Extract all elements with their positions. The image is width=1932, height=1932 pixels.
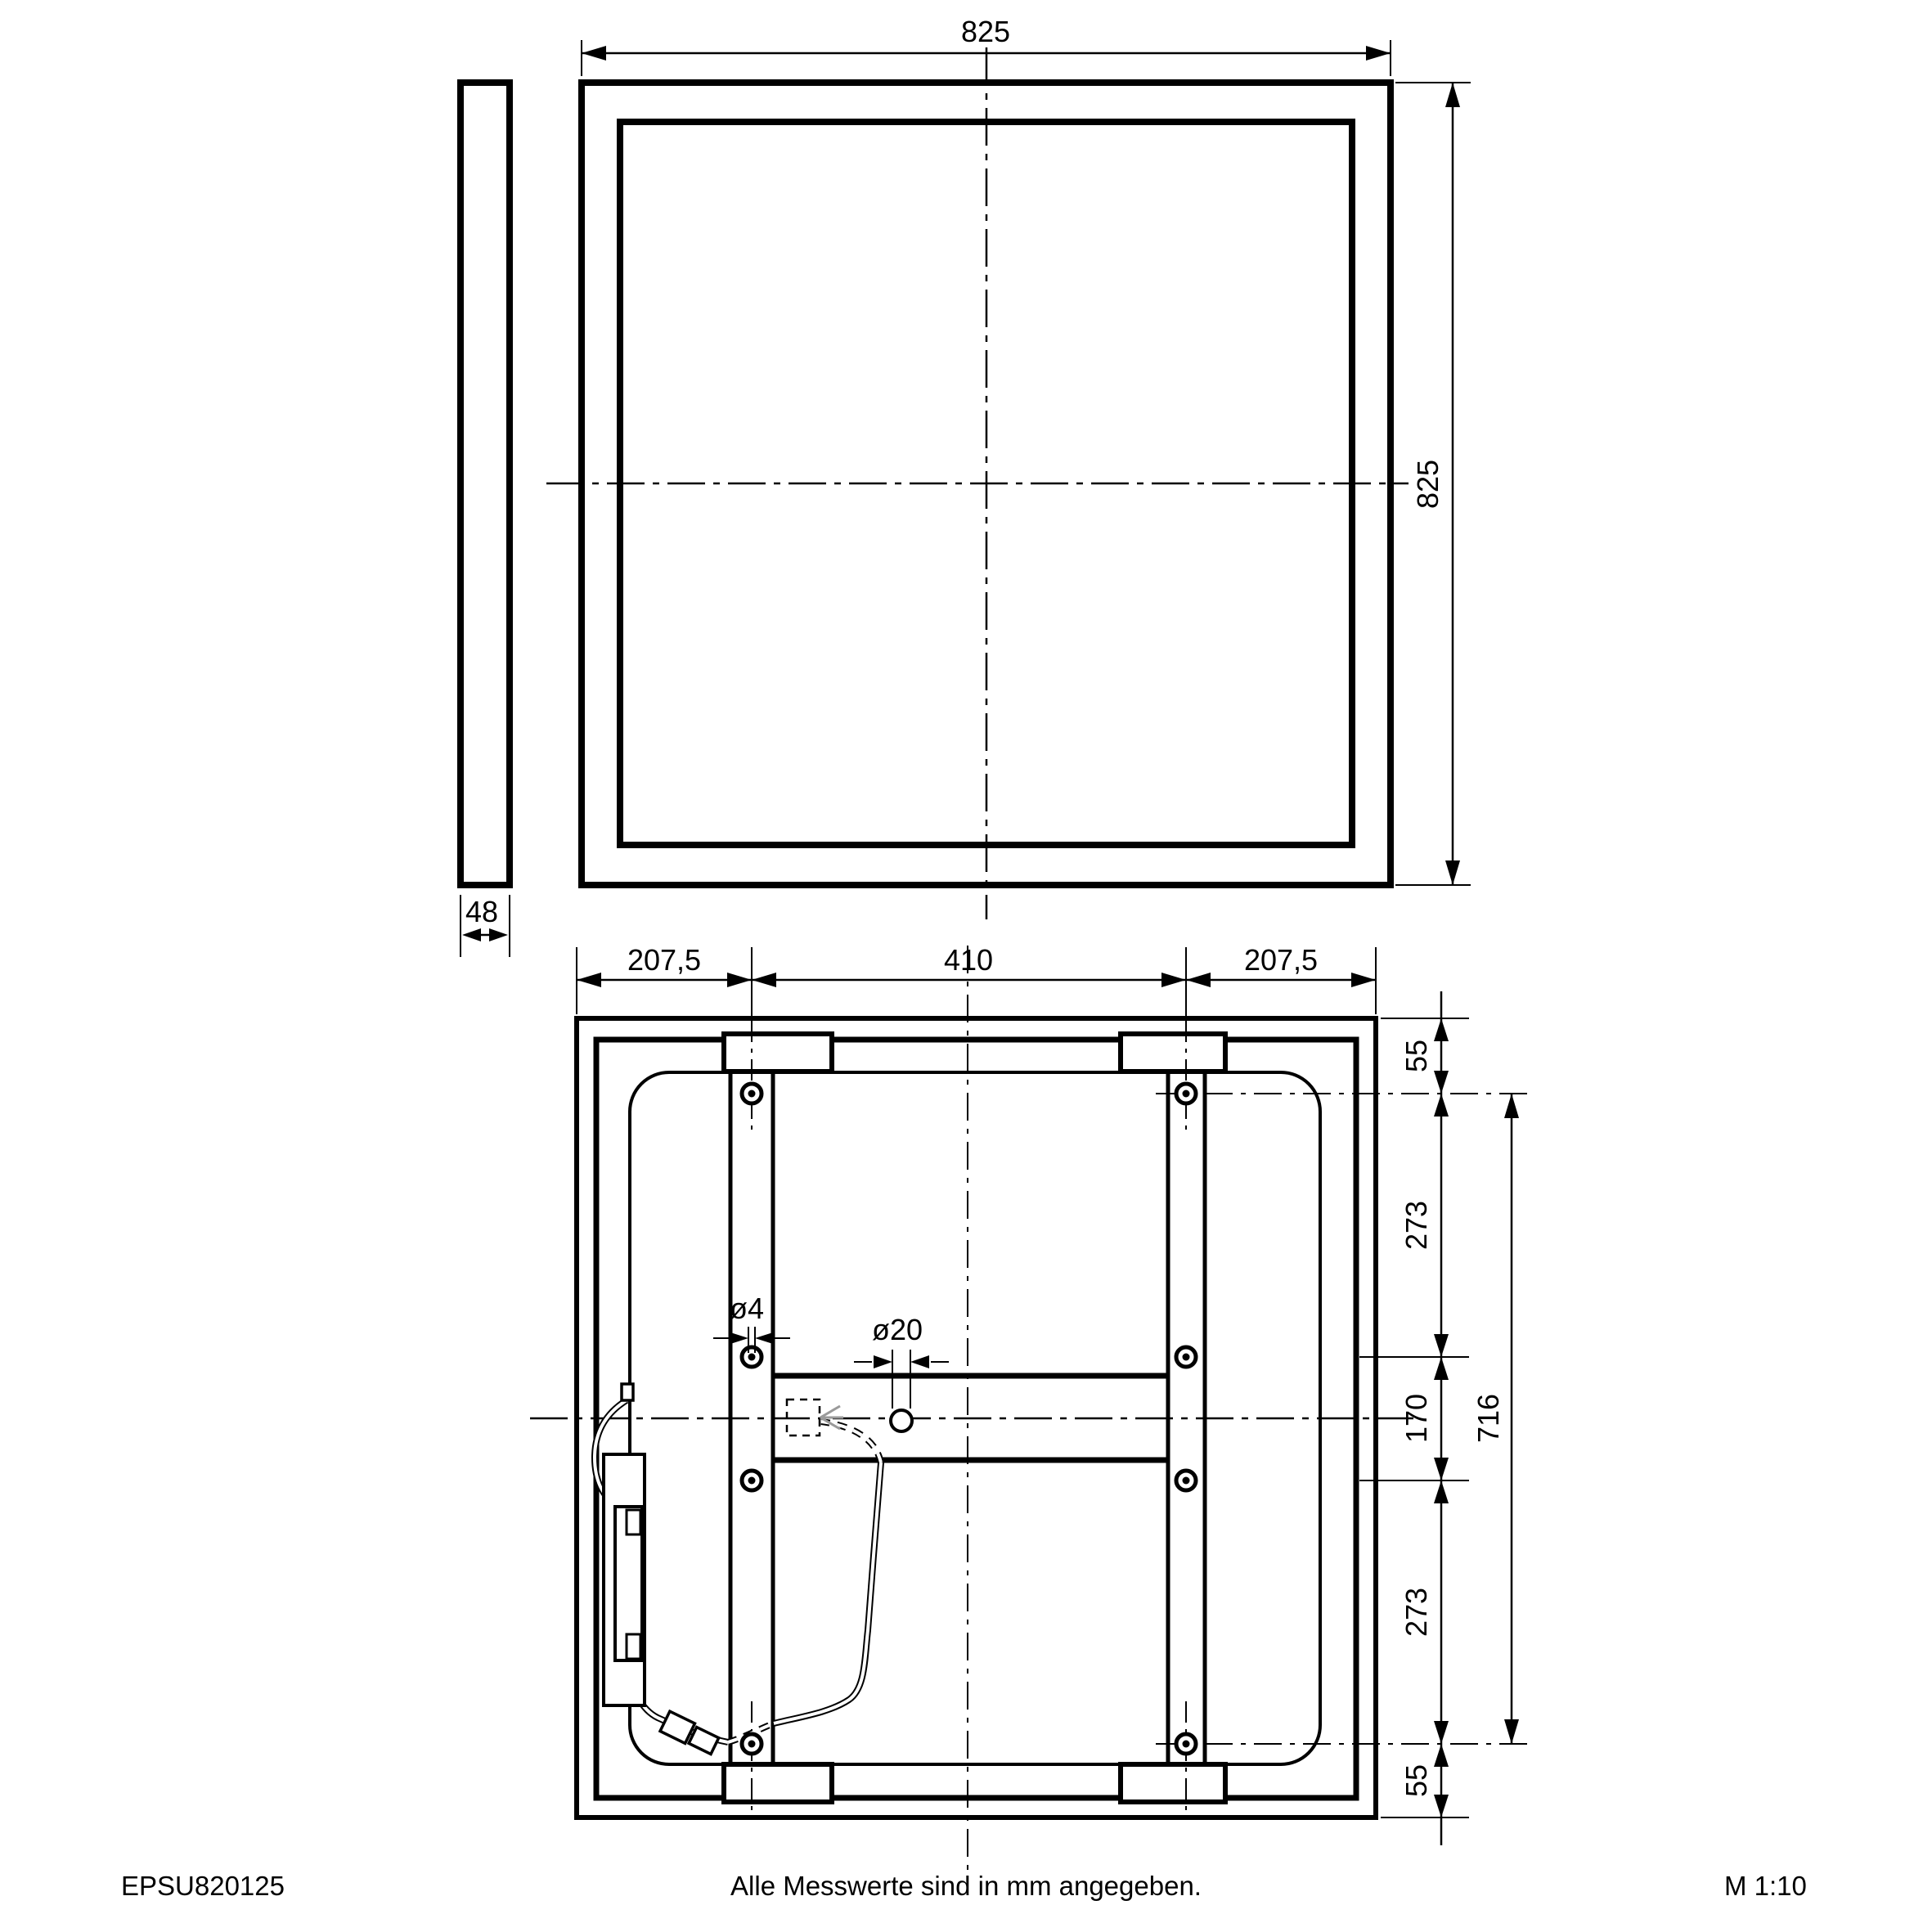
depth-dimension-label: 48 [465,895,498,928]
mounting-tab-bottom-left [724,1764,832,1802]
back-top-right-label: 207,5 [1244,943,1318,977]
title-block: EPSU820125 Alle Messwerte sind in mm ang… [121,1871,1807,1901]
screw-diameter-label: ø4 [730,1292,764,1325]
front-view: 825 825 [546,15,1471,919]
screw-hole-icon [1176,1734,1196,1754]
back-overall-dimension: 716 [1471,1094,1519,1744]
back-view: ø4 ø20 [530,943,1531,1873]
depth-dimension: 48 [461,895,510,957]
back-top-center-label: 410 [944,943,993,977]
mains-connector [622,1384,633,1400]
front-height-label: 825 [1411,460,1445,509]
back-overall-label: 716 [1471,1394,1505,1443]
product-code: EPSU820125 [121,1871,285,1901]
back-right-s1-label: 55 [1400,1040,1433,1072]
screw-hole-icon [1176,1347,1196,1367]
screw-hole-icon [742,1084,762,1103]
cable-hole [891,1410,912,1431]
back-top-left-label: 207,5 [627,943,701,977]
cable-hole-label: ø20 [872,1313,923,1346]
side-view-outline [461,83,510,885]
drawing-page: 48 825 825 [0,0,1932,1932]
footer-note: Alle Messwerte sind in mm angegeben. [730,1871,1202,1901]
screw-hole-icon [1176,1471,1196,1490]
mounting-tab-top-left [724,1034,832,1072]
screw-hole-icon [742,1471,762,1490]
mounting-tab-bottom-right [1121,1764,1225,1802]
back-right-s3-label: 170 [1400,1394,1433,1443]
mounting-tab-top-right [1121,1034,1225,1072]
back-right-s5-label: 55 [1400,1764,1433,1797]
front-width-label: 825 [961,15,1010,48]
screw-hole-icon [742,1734,762,1754]
scale-label: M 1:10 [1724,1871,1807,1901]
screw-hole-icon [742,1347,762,1367]
back-right-s2-label: 273 [1400,1201,1433,1250]
back-right-s4-label: 273 [1400,1588,1433,1637]
screw-hole-icon [1176,1084,1196,1103]
side-view: 48 [461,83,510,957]
drawing-canvas: 48 825 825 [0,0,1932,1932]
